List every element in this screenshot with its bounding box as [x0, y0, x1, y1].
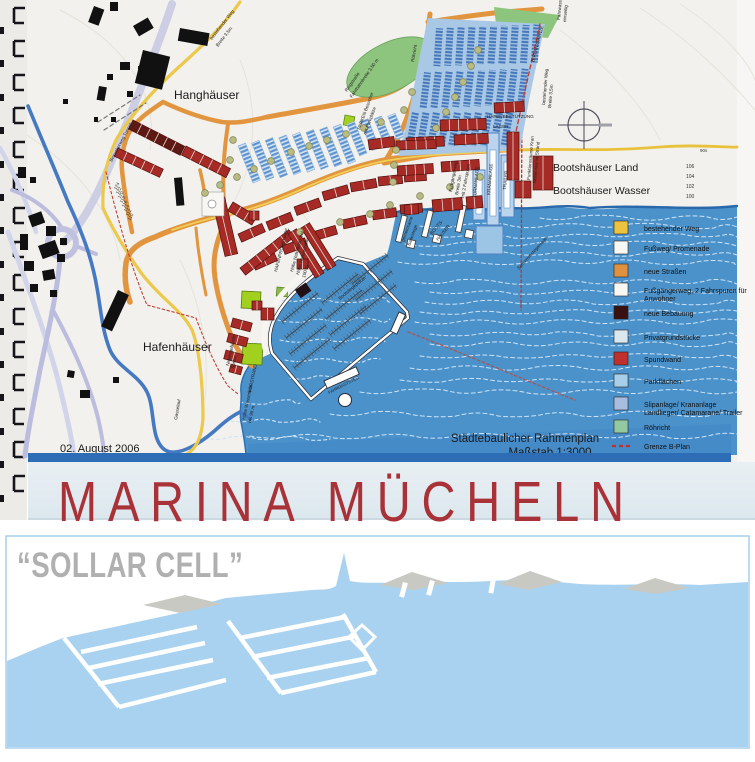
- svg-text:neue Bebauung: neue Bebauung: [644, 311, 694, 318]
- svg-text:neue Straßen: neue Straßen: [644, 269, 687, 276]
- svg-text:Röhricht: Röhricht: [644, 425, 670, 432]
- svg-text:104: 104: [686, 174, 695, 180]
- svg-text:LAGER: LAGER: [493, 124, 509, 129]
- svg-text:HAFENBESTÜTZUNG: HAFENBESTÜTZUNG: [487, 113, 534, 119]
- svg-text:Fußweg/ Promenade: Fußweg/ Promenade: [644, 246, 709, 253]
- svg-text:Privatgrundstücke: Privatgrundstücke: [644, 335, 700, 342]
- svg-text:100: 100: [686, 194, 695, 200]
- svg-text:bestehender Weg: bestehender Weg: [644, 226, 699, 233]
- svg-text:MARINA MÜCHELN: MARINA MÜCHELN: [58, 471, 635, 534]
- svg-text:Bootshäuser Land: Bootshäuser Land: [553, 162, 638, 174]
- svg-text:Grenze B-Plan: Grenze B-Plan: [644, 444, 690, 451]
- svg-text:90s: 90s: [700, 148, 708, 153]
- svg-text:Fußgängerweg, 2 Fahrspuren für: Fußgängerweg, 2 Fahrspuren für: [644, 288, 747, 295]
- svg-text:Bootshäuser Wasser: Bootshäuser Wasser: [553, 185, 651, 197]
- svg-text:Parkflächen: Parkflächen: [644, 379, 681, 386]
- svg-text:Hafenhäuser: Hafenhäuser: [143, 340, 212, 354]
- svg-text:102: 102: [686, 184, 695, 190]
- svg-text:Städtebaulicher Rahmenplan: Städtebaulicher Rahmenplan: [451, 433, 599, 445]
- svg-text:Hanghäuser: Hanghäuser: [174, 88, 239, 102]
- svg-text:Landlieger/ Catamarane/ Traile: Landlieger/ Catamarane/ Trailer: [644, 410, 743, 417]
- svg-text:Anwohner: Anwohner: [644, 296, 676, 303]
- svg-text:Slipanlage/ Krananlage: Slipanlage/ Krananlage: [644, 402, 716, 409]
- svg-text:106: 106: [686, 164, 695, 170]
- svg-text:Spundwand: Spundwand: [644, 357, 681, 364]
- svg-text:“SOLLAR CELL”: “SOLLAR CELL”: [17, 545, 243, 585]
